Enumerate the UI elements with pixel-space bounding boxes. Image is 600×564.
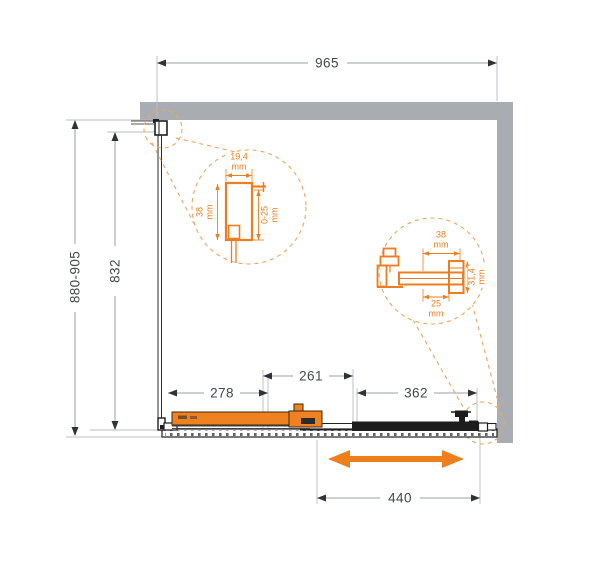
detail2-side-label: 31,4 mm [468, 266, 487, 288]
detail1-adjust-label: 0-25 mm [261, 204, 280, 226]
detail2-bottom-unit: mm [429, 309, 444, 319]
detail1-adjust-unit: mm [270, 206, 280, 224]
detail2-top-label: 38 mm [432, 231, 451, 250]
detail2-side-unit: mm [477, 268, 487, 286]
detail1-depth-label: 38 mm [196, 203, 215, 222]
detail1-width-label: 19,4 mm [228, 153, 250, 172]
glass-panel-left-edge [158, 135, 162, 421]
drawing-linework [0, 0, 600, 564]
detail1-depth-unit: mm [205, 205, 215, 220]
dim-label-glass-height: 832 [108, 255, 123, 287]
sliding-door-panel [352, 411, 479, 432]
slide-direction-arrow [328, 450, 464, 468]
dim-label-fixed-panel: 278 [206, 386, 238, 401]
wall-bracket-top-left [131, 119, 167, 135]
dim-label-top-width: 965 [311, 56, 343, 71]
detail2-bottom-label: 25 mm [427, 300, 446, 319]
dim-label-travel: 440 [384, 491, 416, 506]
wall-right [497, 120, 513, 443]
technical-drawing-canvas: 965 880-905 832 278 261 362 440 19,4 mm … [0, 0, 600, 564]
roller-carriage-orange [289, 404, 322, 427]
wall-top [140, 102, 513, 120]
dim-label-height-range: 880-905 [68, 247, 83, 307]
dim-label-overlap: 261 [295, 369, 327, 384]
dim-label-door: 362 [400, 386, 432, 401]
detail1-width-unit: mm [230, 162, 248, 172]
detail2-top-unit: mm [434, 240, 449, 250]
